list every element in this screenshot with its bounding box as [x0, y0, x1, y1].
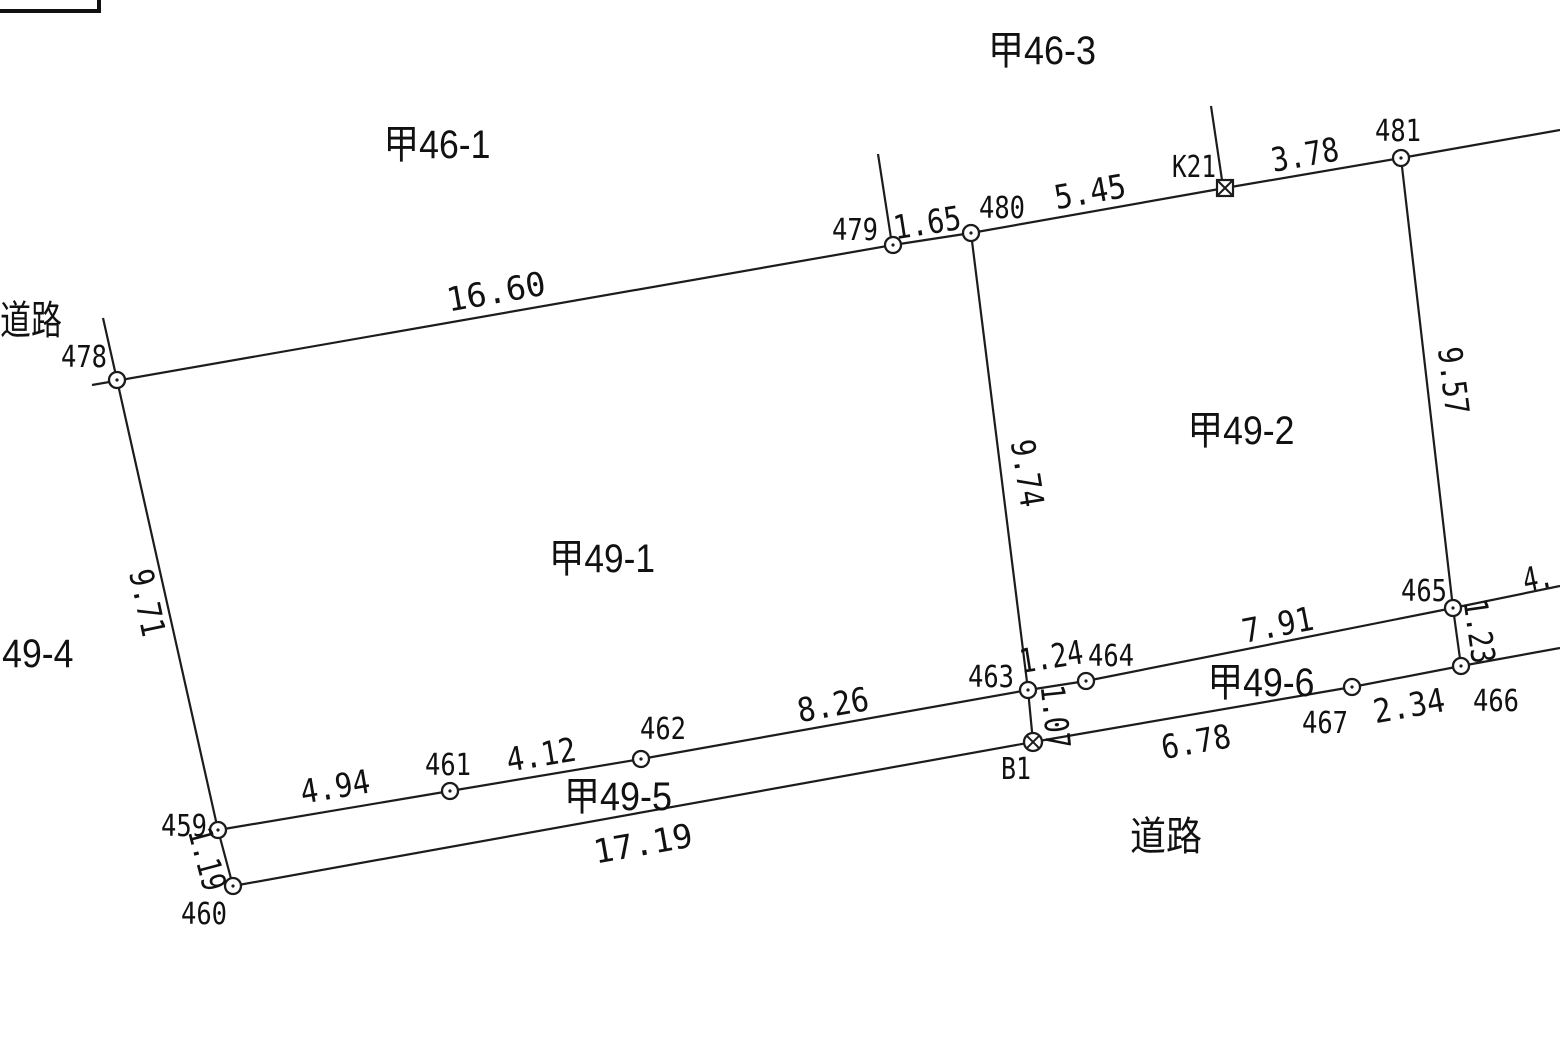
distance-481-465: 9.57 — [1430, 344, 1477, 416]
point-label-461: 461 — [425, 748, 471, 783]
point-label-466: 466 — [1473, 684, 1519, 719]
distance-b1-467: 6.78 — [1158, 716, 1234, 767]
map-canvas: 道路 甲46-1 甲46-3 甲49-1 甲49-2 甲49-4 甲49-5 甲… — [0, 0, 1560, 1063]
distance-478-459: 9.71 — [121, 565, 173, 640]
point-marker-462 — [633, 751, 649, 767]
distance-480-463: 9.74 — [1003, 437, 1052, 510]
distance-467-466: 2.34 — [1370, 680, 1448, 731]
point-label-464: 464 — [1088, 639, 1134, 674]
point-label-480: 480 — [979, 191, 1025, 226]
cadastral-map: 道路 甲46-1 甲46-3 甲49-1 甲49-2 甲49-4 甲49-5 甲… — [0, 0, 1560, 1063]
point-marker-467 — [1344, 679, 1360, 695]
parcel-label-k49-4: 甲49-4 — [0, 632, 74, 676]
point-label-460: 460 — [181, 897, 227, 932]
point-label-479: 479 — [832, 213, 878, 248]
distance-465-edge: 4. — [1519, 556, 1556, 600]
parcel-label-k49-6: 甲49-6 — [1208, 661, 1315, 705]
distance-460-b1: 17.19 — [590, 816, 695, 872]
distance-k21-481: 3.78 — [1268, 130, 1342, 180]
point-label-465: 465 — [1401, 574, 1447, 609]
distance-459-461: 4.94 — [297, 762, 372, 812]
sheet-frame-corner — [0, 0, 99, 11]
distance-479-480: 1.65 — [891, 198, 964, 247]
point-marker-480 — [963, 225, 979, 241]
distance-480-k21: 5.45 — [1051, 166, 1129, 217]
parcel-label-k46-3: 甲46-3 — [988, 29, 1096, 73]
point-marker-464 — [1078, 673, 1094, 689]
point-marker-481 — [1393, 150, 1409, 166]
road-label-left: 道路 — [0, 299, 62, 343]
point-label-k21: K21 — [1172, 150, 1216, 185]
point-marker-478 — [109, 372, 125, 388]
point-label-462: 462 — [640, 712, 686, 747]
boundary-upper-parcel-line — [218, 586, 1560, 830]
distance-478-479: 16.60 — [443, 264, 548, 320]
distance-465-466: 1.23 — [1456, 597, 1504, 666]
point-label-478: 478 — [61, 340, 107, 375]
parcel-label-k46-1: 甲46-1 — [384, 123, 491, 167]
point-label-481: 481 — [1375, 114, 1421, 149]
point-marker-461 — [442, 783, 458, 799]
distance-464-465: 7.91 — [1239, 599, 1317, 651]
distance-463-b1: 1.07 — [1033, 683, 1078, 751]
point-label-467: 467 — [1302, 706, 1348, 741]
parcel-label-k49-1: 甲49-1 — [549, 537, 655, 581]
distance-463-464: 1.24 — [1017, 632, 1086, 681]
parcel-label-k49-2: 甲49-2 — [1188, 409, 1295, 453]
distance-462-463: 8.26 — [794, 679, 872, 730]
point-label-b1: B1 — [1001, 752, 1031, 787]
point-marker-k21-crossed-square — [1217, 180, 1233, 196]
tick-above-479 — [878, 154, 891, 238]
parcel-label-k49-5: 甲49-5 — [564, 775, 672, 819]
road-label-bottom: 道路 — [1130, 815, 1202, 859]
point-label-463: 463 — [968, 660, 1014, 695]
